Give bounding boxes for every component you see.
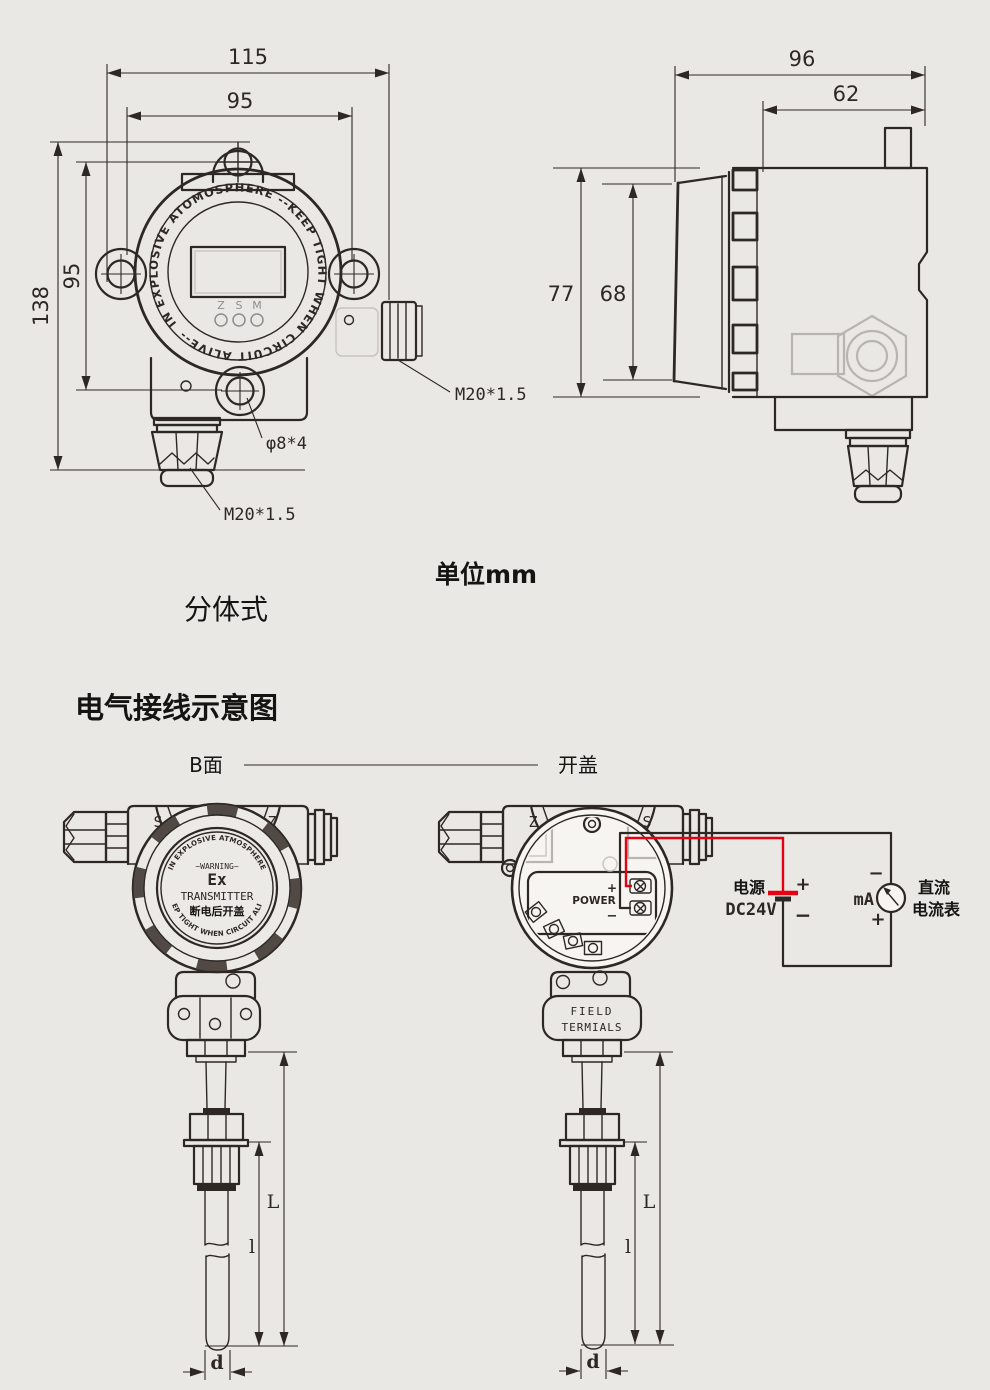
button-m	[251, 314, 263, 326]
power-minus: −	[607, 909, 618, 924]
wiring-header: B面 开盖	[189, 753, 598, 777]
side-dim-width-inner: 62	[833, 82, 860, 106]
closed-left-gland	[64, 812, 128, 862]
right-mount-ear	[329, 249, 379, 299]
open-probe-assembly: FIELD TERMIALS	[543, 971, 641, 1349]
ammeter-symbol	[877, 884, 905, 912]
dim-insert-length: l	[249, 1236, 255, 1258]
dim-height-inner: 95	[60, 263, 84, 290]
side-view-drawing: 96 62 77 68	[548, 47, 927, 502]
dc-supply-symbol	[768, 893, 798, 899]
button-s-label: S	[236, 299, 243, 312]
power-plus: +	[607, 881, 617, 895]
dim-total-length: L	[267, 1191, 280, 1213]
technical-drawing-page: 115 95 138 95 I	[0, 0, 990, 1390]
open-warning-cn: 断电后开盖	[190, 904, 245, 918]
button-z	[215, 314, 227, 326]
left-mount-ear	[96, 249, 146, 299]
field-terminals-line1: FIELD	[570, 1005, 613, 1018]
dim-width-outer: 115	[228, 45, 268, 69]
ex-mark: Ex	[207, 870, 227, 889]
power-label: POWER	[572, 895, 615, 907]
supply-name: 电源	[733, 878, 765, 897]
bezel-ring-text: IN EXPLOSIVE ATOMOSPHERE --KEEP TIGHT WH…	[146, 180, 329, 363]
front-view-drawing: 115 95 138 95 I	[29, 45, 527, 525]
split-type-label: 分体式	[184, 593, 268, 626]
side-bottom-gland	[775, 397, 912, 502]
field-terminals-line2: TERMIALS	[562, 1021, 623, 1034]
meter-plus: +	[870, 909, 885, 930]
meter-name-line2: 电流表	[912, 900, 961, 919]
closed-arc-bottom-text: -KEEP TIGHT WHEN CIRCUIT ALIVE-	[0, 0, 264, 938]
closed-cover-face: -IN EXPLOSIVE ATMOSPHERE- -KEEP TIGHT WH…	[0, 0, 301, 972]
open-mark-left: Z	[528, 813, 537, 831]
closed-probe-assembly	[168, 972, 260, 1350]
open-transmitter-figure: Z S	[439, 806, 712, 1379]
front-view-body: IN EXPLOSIVE ATOMOSPHERE --KEEP TIGHT WH…	[96, 142, 527, 525]
side-conduit	[336, 302, 422, 360]
supply-minus: −	[795, 903, 812, 927]
open-left-gland	[439, 812, 503, 862]
dim-total-length-2: L	[643, 1191, 656, 1213]
bottom-cable-gland	[152, 418, 222, 486]
bottom-conduit-label: M20*1.5	[224, 505, 296, 525]
supply-voltage: DC24V	[725, 900, 776, 920]
closed-probe-dimensions: L l d	[183, 1052, 298, 1380]
meter-unit: mA	[854, 890, 874, 910]
button-m-label: M	[252, 299, 262, 312]
side-b-label: B面	[189, 753, 223, 777]
meter-name-line1: 直流	[918, 878, 950, 897]
dim-diameter: d	[210, 1352, 223, 1374]
bottom-mount-ear	[216, 367, 264, 415]
dim-insert-length-2: l	[625, 1236, 631, 1258]
unit-note: 单位mm	[435, 560, 537, 589]
closed-arc-top-text: -IN EXPLOSIVE ATMOSPHERE-	[0, 0, 267, 871]
cover-ribs	[733, 170, 757, 390]
lcd-display	[191, 247, 285, 297]
device-name: TRANSMITTER	[181, 890, 254, 903]
open-cover-label: 开盖	[558, 753, 598, 777]
drawing-svg: 115 95 138 95 I	[0, 0, 990, 1390]
dim-height-outer: 138	[29, 286, 53, 326]
side-dim-height-inner: 68	[600, 282, 627, 306]
supply-plus: +	[795, 874, 810, 895]
closed-right-gland	[308, 810, 337, 864]
mount-holes-label: φ8*4	[266, 434, 307, 454]
zsm-buttons: Z S M	[215, 299, 263, 326]
side-dim-width-outer: 96	[789, 47, 816, 71]
dim-width-inner: 95	[227, 89, 254, 113]
side-view-body	[674, 128, 927, 502]
dim-diameter-2: d	[586, 1351, 599, 1373]
button-z-label: Z	[217, 299, 225, 312]
side-dim-height-outer: 77	[548, 282, 575, 306]
side-conduit-label: M20*1.5	[455, 385, 527, 405]
meter-minus: −	[868, 863, 883, 884]
button-s	[233, 314, 245, 326]
side-view-dimensions: 96 62 77 68	[548, 47, 925, 397]
open-probe-dimensions: L l d	[559, 1052, 674, 1379]
wiring-section-title: 电气接线示意图	[75, 691, 278, 725]
